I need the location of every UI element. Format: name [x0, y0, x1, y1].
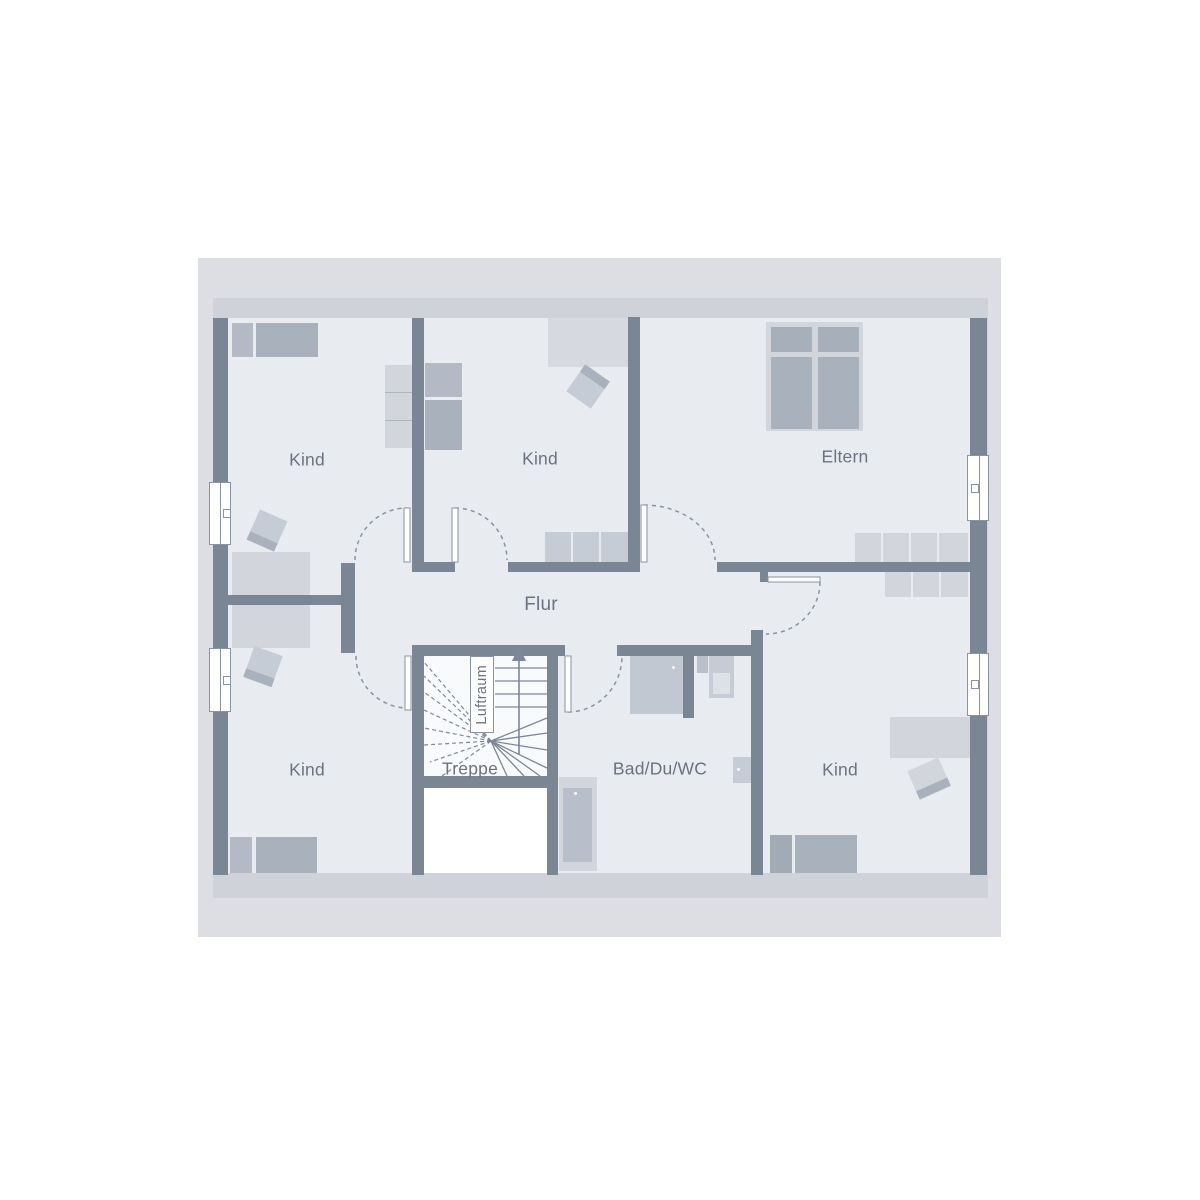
door-swing-arc [568, 656, 622, 712]
door-leaf [404, 508, 410, 562]
room-label-flur: Flur [524, 594, 558, 616]
door-leaf [565, 656, 571, 712]
luftraum-void-box: Luftraum [470, 656, 494, 733]
door-swing-arc [644, 505, 715, 560]
door-leaf [768, 577, 820, 582]
room-label-kind-bottom-right: Kind [822, 760, 858, 781]
room-label-kind-top-left: Kind [289, 450, 325, 471]
door-swing-arc [455, 508, 507, 560]
door-swing-arc [766, 582, 820, 634]
room-label-kind-top-middle: Kind [522, 449, 558, 470]
room-label-bad: Bad/Du/WC [613, 759, 707, 780]
room-label-kind-bottom-left: Kind [289, 760, 325, 781]
door-leaf [452, 508, 458, 562]
floor-plan: Luftraum Kind Kind Eltern Flur Kind Trep… [0, 0, 1200, 1200]
room-label-eltern: Eltern [822, 447, 869, 468]
luftraum-label: Luftraum [474, 665, 490, 725]
door-leaf [405, 656, 411, 710]
door-swing-arc [356, 656, 408, 708]
room-label-treppe: Treppe [442, 759, 498, 780]
plan-linework [0, 0, 1200, 1200]
door-leaf [641, 505, 647, 562]
door-swing-arc [355, 508, 407, 560]
